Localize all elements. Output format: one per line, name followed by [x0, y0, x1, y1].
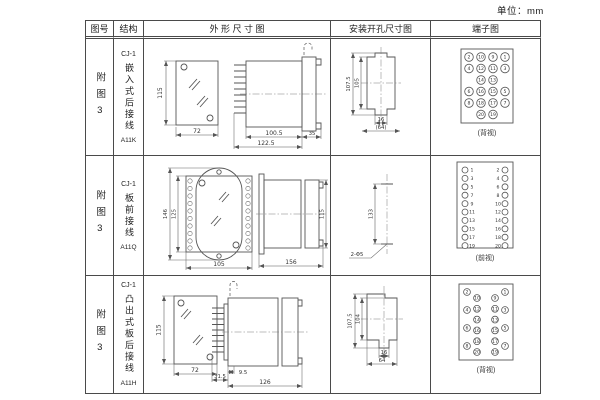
terminal-number: 19	[469, 243, 475, 249]
outline-cell-3: 115 72 9.5 31.5 126	[144, 276, 331, 394]
terminal-caption-3: (背视)	[477, 365, 496, 374]
terminal-number: 6	[497, 185, 500, 191]
terminal-number: 11	[469, 210, 475, 216]
terminal-number: 6	[468, 89, 471, 95]
header-figure-no: 图号	[86, 21, 114, 39]
pins	[234, 65, 246, 113]
terminal-number: 15	[492, 328, 498, 334]
dim-front-width-3: 72	[191, 367, 199, 374]
terminal-circle	[462, 217, 468, 223]
dim-width-2: 105	[213, 261, 225, 268]
outline-cell-1: 115 72 100.5 122.5 35	[144, 39, 331, 156]
terminal-number: 12	[478, 66, 484, 72]
install-drawing-a11q: 133 2-Φ5	[331, 156, 430, 275]
terminal-number: 10	[474, 296, 480, 302]
dim-plate-height-2: 146	[163, 208, 169, 219]
terminal-number: 13	[490, 78, 496, 84]
hatch-marks	[181, 309, 203, 345]
dim-front-height-3: 115	[156, 324, 163, 336]
terminal-number: 8	[497, 193, 500, 199]
dim-depth1-1: 100.5	[265, 130, 282, 137]
model-label-2: CJ-1	[121, 181, 136, 188]
pins	[212, 308, 224, 352]
terminal-number: 16	[474, 328, 480, 334]
terminal-strip-dots	[188, 179, 250, 250]
header-outline: 外 形 尺 寸 图	[144, 21, 331, 39]
terminal-pairs-2: 1234567891011121314151617181920	[462, 167, 508, 249]
terminal-number: 4	[468, 66, 471, 72]
header-structure: 结构	[114, 21, 144, 39]
terminal-circle	[462, 167, 468, 173]
terminal-number: 1	[504, 55, 507, 61]
terminal-number: 9	[492, 55, 495, 61]
terminal-grid-1: 2109141211314136161558181772019	[465, 53, 510, 119]
figure-no-1: 附图3	[95, 72, 105, 123]
terminal-number: 11	[492, 307, 498, 313]
terminal-number: 5	[504, 326, 507, 332]
terminal-circle	[462, 234, 468, 240]
terminal-circle	[462, 243, 468, 249]
terminal-cell-1: 2109141211314136161558181772019 (背视)	[431, 39, 541, 156]
terminal-number: 20	[495, 243, 501, 249]
terminal-circle	[462, 192, 468, 198]
structure-cell-1: CJ-1 嵌入式后接线 A11K	[114, 39, 144, 156]
model-label-1: CJ-1	[121, 51, 136, 58]
hatch-marks	[211, 192, 229, 226]
terminal-circle	[502, 184, 508, 190]
dim-install-inner-h-3: 104	[356, 313, 362, 324]
terminal-circle	[462, 226, 468, 232]
dim-outer-width-3: 64	[379, 358, 386, 364]
terminal-circle	[462, 175, 468, 181]
structure-cell-3: CJ-1 凸出式板后接线 A11H	[114, 276, 144, 394]
structure-label-3: 凸出式板后接线	[124, 294, 133, 375]
terminal-columns-3: 2468101214161820911131517191357	[464, 289, 509, 356]
install-cell-2: 133 2-Φ5	[331, 156, 431, 276]
terminal-number: 2	[497, 168, 500, 174]
terminal-number: 9	[471, 201, 474, 207]
terminal-diagram-a11k: 2109141211314136161558181772019 (背视)	[431, 39, 540, 155]
terminal-number: 6	[466, 326, 469, 332]
dim-hole-spacing-2: 133	[369, 209, 375, 219]
terminal-number: 5	[504, 89, 507, 95]
structure-cell-2: CJ-1 板前接线 A11Q	[114, 156, 144, 276]
terminal-circle	[462, 201, 468, 207]
figure-no-2: 附图3	[95, 190, 105, 241]
clamp-symbol	[304, 43, 312, 55]
hatch-marks	[189, 79, 208, 107]
terminal-circle	[502, 209, 508, 215]
terminal-number: 14	[495, 218, 501, 224]
dimension-table: 图号 结构 外 形 尺 寸 图 安装开孔尺寸图 端子图 附图3 CJ-1 嵌入式…	[85, 20, 541, 394]
terminal-number: 1	[504, 290, 507, 296]
terminal-circle	[502, 192, 508, 198]
terminal-number: 13	[492, 317, 498, 323]
terminal-number: 10	[478, 55, 484, 61]
dim-depth-3: 126	[259, 379, 271, 386]
terminal-circle	[502, 201, 508, 207]
install-cell-1: 107.5 105 16 (64)	[331, 39, 431, 156]
terminal-number: 18	[474, 339, 480, 345]
terminal-number: 1	[471, 168, 474, 174]
type-code-3: A11H	[121, 380, 137, 387]
clamp-symbol	[230, 282, 237, 297]
terminal-number: 16	[478, 89, 484, 95]
type-code-1: A11K	[121, 137, 136, 144]
terminal-number: 12	[495, 210, 501, 216]
terminal-number: 3	[504, 66, 507, 72]
terminal-number: 15	[469, 227, 475, 233]
terminal-cell-2: 1234567891011121314151617181920 (前视)	[431, 156, 541, 276]
terminal-number: 17	[490, 101, 496, 107]
install-drawing-a11k: 107.5 105 16 (64)	[331, 39, 430, 155]
terminal-circle	[502, 243, 508, 249]
terminal-circle	[502, 175, 508, 181]
dim-install-outer-h-1: 107.5	[346, 76, 352, 91]
dim-install-inner-h-1: 105	[355, 78, 361, 88]
terminal-caption-2: (前视)	[476, 253, 495, 262]
terminal-circle	[502, 167, 508, 173]
outline-drawing-a11q: 146 125 105 156 115	[144, 156, 330, 275]
terminal-number: 8	[466, 344, 469, 350]
terminal-number: 8	[468, 101, 471, 107]
terminal-number: 7	[471, 193, 474, 199]
terminal-number: 11	[490, 66, 496, 72]
terminal-number: 18	[495, 235, 501, 241]
dim-inner-height-2: 125	[172, 209, 178, 219]
dim-pin-depth-3: 31.5	[214, 374, 226, 380]
terminal-number: 3	[471, 176, 474, 182]
terminal-number: 19	[492, 350, 498, 356]
terminal-number: 16	[495, 227, 501, 233]
terminal-number: 18	[478, 101, 484, 107]
structure-label-1: 嵌入式后接线	[124, 63, 133, 132]
header-install: 安装开孔尺寸图	[331, 21, 431, 39]
terminal-circle	[462, 209, 468, 215]
terminal-number: 20	[474, 350, 480, 356]
terminal-cell-3: 2468101214161820911131517191357 (背视)	[431, 276, 541, 394]
hole-note-2: 2-Φ5	[351, 252, 364, 258]
dim-install-outer-h-3: 107.5	[348, 313, 354, 328]
terminal-number: 2	[468, 55, 471, 61]
dim-front-height-1: 115	[157, 87, 164, 99]
terminal-caption-1: (背视)	[478, 128, 497, 137]
figure-no-3: 附图3	[95, 309, 105, 360]
terminal-number: 7	[504, 101, 507, 107]
terminal-number: 3	[504, 308, 507, 314]
type-code-2: A11Q	[120, 244, 136, 251]
terminal-number: 4	[497, 176, 500, 182]
header-terminal: 端子图	[431, 21, 541, 39]
terminal-number: 13	[469, 218, 475, 224]
structure-label-2: 板前接线	[124, 193, 133, 239]
terminal-number: 7	[504, 344, 507, 350]
model-label-3: CJ-1	[121, 282, 136, 289]
outline-cell-2: 146 125 105 156 115	[144, 156, 331, 276]
terminal-number: 14	[478, 78, 484, 84]
terminal-number: 19	[490, 112, 496, 118]
terminal-number: 4	[466, 308, 469, 314]
dim-side-height-2: 115	[320, 209, 326, 219]
dim-slot-width-3: 16	[381, 350, 388, 356]
dim-outer-width-1: (64)	[376, 125, 387, 131]
dim-front-width-1: 72	[193, 128, 201, 135]
unit-label: 单位：mm	[497, 3, 544, 17]
terminal-number: 15	[490, 89, 496, 95]
install-cell-3: 107.5 104 16 64	[331, 276, 431, 394]
outline-drawing-a11h: 115 72 9.5 31.5 126	[144, 276, 330, 393]
terminal-number: 17	[492, 339, 498, 345]
terminal-diagram-a11h: 2468101214161820911131517191357 (背视)	[431, 276, 540, 393]
terminal-number: 10	[495, 201, 501, 207]
terminal-number: 9	[494, 296, 497, 302]
terminal-number: 12	[474, 307, 480, 313]
dim-depth-2: 156	[285, 259, 297, 266]
dim-depth2-1: 122.5	[257, 140, 274, 147]
terminal-number: 14	[474, 317, 480, 323]
terminal-number: 2	[466, 290, 469, 296]
figure-no-cell-1: 附图3	[86, 39, 114, 156]
figure-no-cell-2: 附图3	[86, 156, 114, 276]
terminal-circle	[502, 226, 508, 232]
terminal-circle	[462, 184, 468, 190]
terminal-number: 17	[469, 235, 475, 241]
outline-drawing-a11k: 115 72 100.5 122.5 35	[144, 39, 330, 155]
figure-no-cell-3: 附图3	[86, 276, 114, 394]
dim-flange-1: 35	[309, 131, 316, 137]
terminal-number: 5	[471, 185, 474, 191]
terminal-number: 20	[478, 112, 484, 118]
terminal-circle	[502, 217, 508, 223]
dim-pin-offset-3: 9.5	[239, 370, 247, 376]
terminal-diagram-a11q: 1234567891011121314151617181920 (前视)	[431, 156, 540, 275]
terminal-circle	[502, 234, 508, 240]
install-drawing-a11h: 107.5 104 16 64	[331, 276, 430, 393]
dim-slot-width-1: 16	[378, 117, 385, 123]
